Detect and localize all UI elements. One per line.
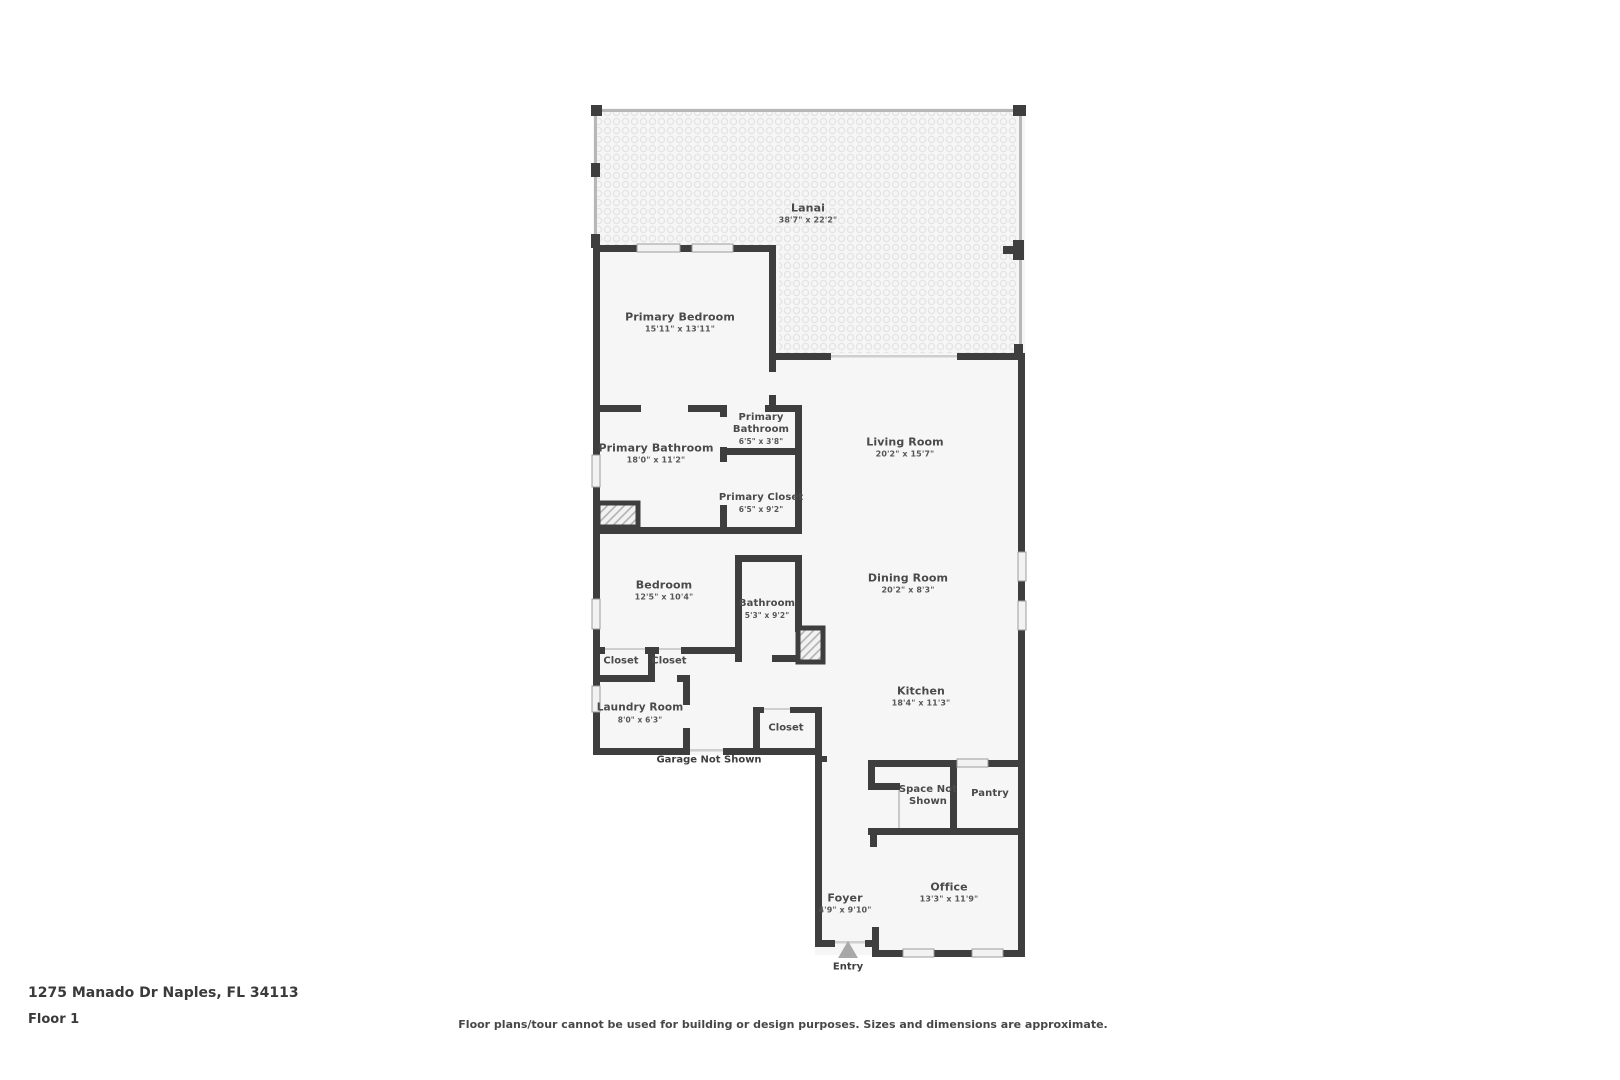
footer-floor-label: Floor 1 <box>28 1012 79 1027</box>
footer-disclaimer: Floor plans/tour cannot be used for buil… <box>458 1018 1107 1031</box>
space-not-shown-edge <box>898 790 900 828</box>
floor-plan-canvas <box>0 0 1620 1080</box>
footer-address: 1275 Manado Dr Naples, FL 34113 <box>28 985 299 1001</box>
floor-plan-page: Lanai 38'7" x 22'2" Primary Bedroom 15'1… <box>0 0 1620 1080</box>
